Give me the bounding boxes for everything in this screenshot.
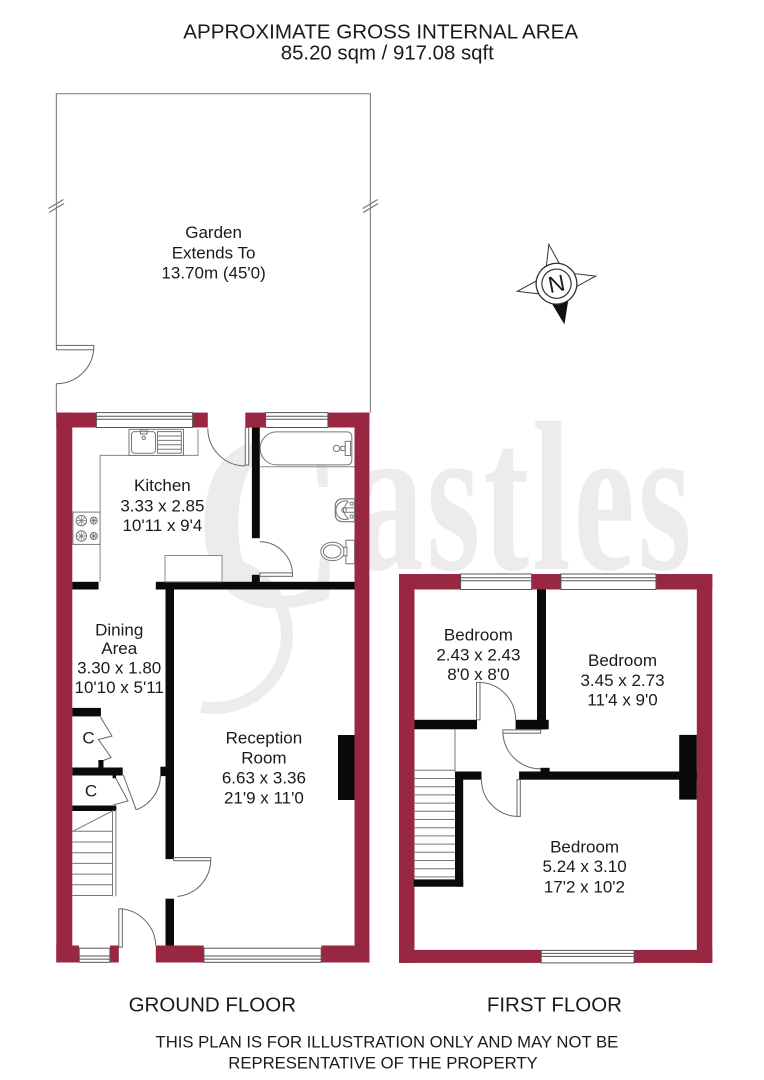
svg-text:13.70m (45'0): 13.70m (45'0)	[161, 264, 265, 283]
svg-text:C: C	[82, 729, 94, 748]
svg-text:3.30 x 1.80: 3.30 x 1.80	[77, 658, 161, 677]
svg-text:Bedroom: Bedroom	[588, 651, 657, 670]
svg-text:21'9 x 11'0: 21'9 x 11'0	[224, 788, 304, 807]
svg-text:APPROXIMATE GROSS INTERNAL ARE: APPROXIMATE GROSS INTERNAL AREA	[183, 21, 578, 44]
svg-text:17'2 x 10'2: 17'2 x 10'2	[544, 878, 625, 897]
svg-text:10'10 x 5'11: 10'10 x 5'11	[75, 678, 164, 697]
svg-text:85.20 sqm / 917.08 sqft: 85.20 sqm / 917.08 sqft	[281, 43, 494, 65]
svg-text:Kitchen: Kitchen	[134, 476, 191, 495]
svg-text:2.43 x 2.43: 2.43 x 2.43	[436, 645, 520, 664]
svg-text:Extends To: Extends To	[172, 243, 256, 262]
svg-text:Bedroom: Bedroom	[444, 626, 513, 645]
svg-text:Garden: Garden	[185, 223, 242, 242]
svg-text:3.33 x 2.85: 3.33 x 2.85	[120, 497, 204, 516]
svg-text:8'0 x 8'0: 8'0 x 8'0	[447, 665, 509, 684]
svg-text:6.63 x 3.36: 6.63 x 3.36	[222, 768, 306, 787]
svg-text:Room: Room	[241, 748, 286, 767]
svg-text:10'11 x 9'4: 10'11 x 9'4	[122, 516, 202, 535]
svg-text:REPRESENTATIVE OF THE PROPERTY: REPRESENTATIVE OF THE PROPERTY	[228, 1054, 537, 1073]
svg-text:C: C	[85, 782, 97, 801]
svg-text:GROUND FLOOR: GROUND FLOOR	[129, 994, 296, 1017]
svg-text:Reception: Reception	[226, 729, 303, 748]
svg-text:THIS PLAN IS FOR ILLUSTRATION: THIS PLAN IS FOR ILLUSTRATION ONLY AND M…	[156, 1032, 619, 1051]
svg-text:Dining: Dining	[95, 620, 143, 639]
svg-text:5.24 x 3.10: 5.24 x 3.10	[543, 857, 627, 876]
svg-text:FIRST FLOOR: FIRST FLOOR	[487, 994, 622, 1017]
svg-text:Bedroom: Bedroom	[550, 838, 619, 857]
svg-text:3.45 x 2.73: 3.45 x 2.73	[580, 671, 664, 690]
svg-text:Area: Area	[101, 639, 137, 658]
svg-text:11'4 x 9'0: 11'4 x 9'0	[587, 691, 657, 710]
